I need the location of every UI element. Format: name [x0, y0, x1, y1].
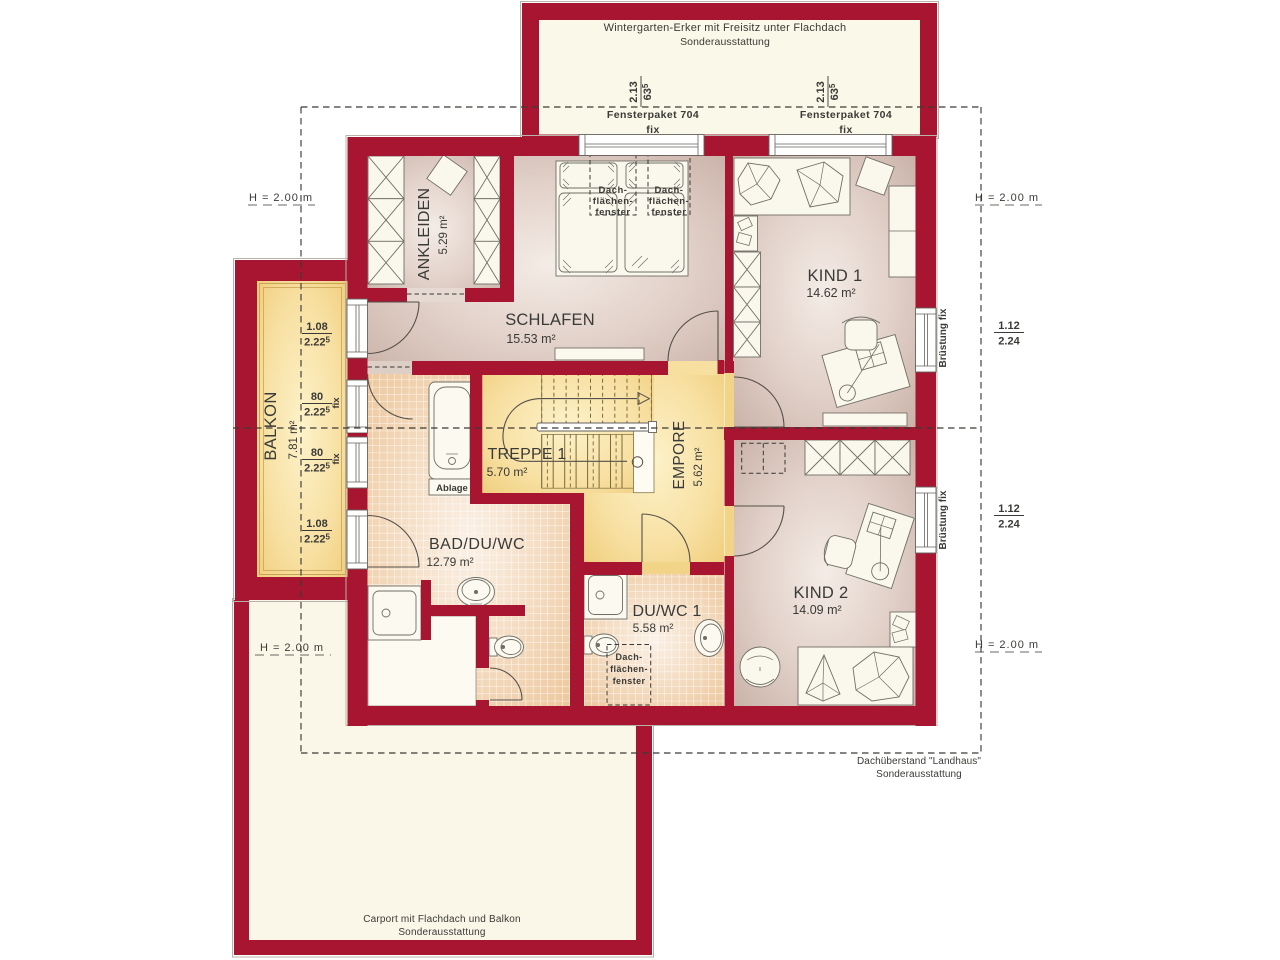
- svg-text:H = 2.00 m: H = 2.00 m: [975, 639, 1039, 651]
- svg-text:14.09 m²: 14.09 m²: [792, 603, 841, 617]
- svg-text:fix: fix: [331, 453, 342, 465]
- svg-text:Sonderausstattung: Sonderausstattung: [680, 36, 770, 48]
- svg-text:BALKON: BALKON: [262, 391, 280, 460]
- svg-text:2.13: 2.13: [628, 81, 640, 102]
- svg-text:80: 80: [311, 447, 323, 459]
- svg-text:Fensterpaket 704: Fensterpaket 704: [800, 109, 892, 121]
- svg-text:Sonderausstattung: Sonderausstattung: [876, 769, 962, 780]
- svg-text:2.13: 2.13: [815, 81, 827, 102]
- svg-text:fenster: fenster: [651, 207, 686, 218]
- svg-text:BAD/DU/WC: BAD/DU/WC: [429, 536, 525, 553]
- svg-text:Dach-: Dach-: [599, 185, 628, 196]
- svg-text:14.62 m²: 14.62 m²: [806, 286, 855, 300]
- svg-text:2.24: 2.24: [998, 519, 1020, 531]
- svg-text:1.08: 1.08: [306, 321, 327, 333]
- svg-text:15.53 m²: 15.53 m²: [506, 332, 555, 346]
- svg-text:Brüstung fix: Brüstung fix: [938, 308, 949, 367]
- svg-text:Ablage: Ablage: [436, 483, 468, 494]
- svg-text:H = 2.00 m: H = 2.00 m: [260, 642, 324, 654]
- svg-text:Dachüberstand "Landhaus": Dachüberstand "Landhaus": [857, 756, 981, 767]
- svg-text:80: 80: [311, 391, 323, 403]
- svg-text:flächen-: flächen-: [610, 664, 648, 674]
- svg-text:SCHLAFEN: SCHLAFEN: [505, 311, 595, 329]
- svg-text:KIND 2: KIND 2: [794, 584, 849, 602]
- svg-text:fenster: fenster: [595, 207, 630, 218]
- svg-text:1.12: 1.12: [998, 320, 1019, 332]
- svg-text:Dach-: Dach-: [615, 652, 642, 662]
- svg-text:12.79 m²: 12.79 m²: [426, 555, 473, 569]
- svg-text:KIND 1: KIND 1: [808, 267, 863, 285]
- svg-text:TREPPE 1: TREPPE 1: [488, 446, 567, 463]
- svg-text:7.81 m²: 7.81 m²: [288, 420, 300, 459]
- svg-text:flächen-: flächen-: [593, 196, 633, 207]
- svg-text:DU/WC 1: DU/WC 1: [633, 603, 702, 620]
- svg-text:Brüstung fix: Brüstung fix: [938, 490, 949, 549]
- svg-text:fenster: fenster: [613, 676, 646, 686]
- svg-text:Sonderausstattung: Sonderausstattung: [398, 927, 485, 938]
- svg-text:fix: fix: [331, 397, 342, 409]
- svg-text:5.62 m²: 5.62 m²: [693, 447, 705, 486]
- svg-text:1.08: 1.08: [306, 518, 327, 530]
- svg-text:5.29 m²: 5.29 m²: [438, 215, 450, 254]
- svg-text:5.70 m²: 5.70 m²: [487, 465, 528, 479]
- svg-text:1.12: 1.12: [998, 503, 1019, 515]
- svg-text:Wintergarten-Erker mit Freisit: Wintergarten-Erker mit Freisitz unter Fl…: [604, 22, 847, 34]
- svg-text:H = 2.00 m: H = 2.00 m: [249, 192, 313, 204]
- svg-text:Dach-: Dach-: [655, 185, 684, 196]
- svg-text:flächen-: flächen-: [649, 196, 689, 207]
- svg-text:Fensterpaket 704: Fensterpaket 704: [607, 109, 699, 121]
- svg-text:ANKLEIDEN: ANKLEIDEN: [416, 188, 433, 281]
- svg-text:H = 2.00 m: H = 2.00 m: [975, 192, 1039, 204]
- svg-text:Carport mit Flachdach und Balk: Carport mit Flachdach und Balkon: [363, 914, 521, 925]
- svg-text:2.24: 2.24: [998, 336, 1020, 348]
- svg-text:EMPORE: EMPORE: [671, 421, 688, 490]
- svg-text:5.58 m²: 5.58 m²: [633, 621, 674, 635]
